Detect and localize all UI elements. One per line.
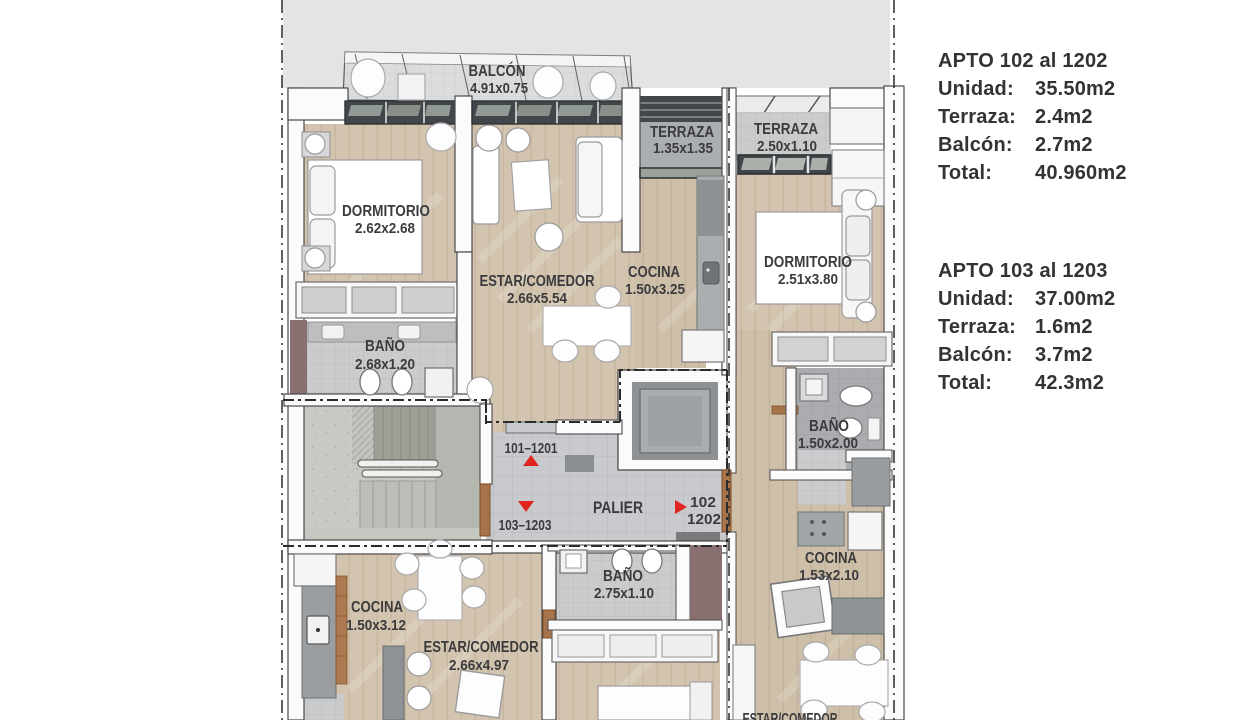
svg-text:1.6m2: 1.6m2 [1035,316,1093,338]
svg-text:COCINA: COCINA [805,550,857,567]
svg-text:Total:: Total: [938,372,992,394]
svg-text:TERRAZA: TERRAZA [650,124,714,141]
svg-text:103–1203: 103–1203 [499,517,552,534]
svg-text:ESTAR/COMEDOR: ESTAR/COMEDOR [480,273,595,290]
svg-text:2.66x5.54: 2.66x5.54 [507,291,567,307]
svg-text:2.62x2.68: 2.62x2.68 [355,221,415,237]
svg-text:Unidad:: Unidad: [938,288,1014,310]
svg-text:BAÑO: BAÑO [603,567,643,585]
svg-text:Terraza:: Terraza: [938,316,1016,338]
svg-text:BALCÓN: BALCÓN [469,62,526,80]
svg-text:DORMITORIO: DORMITORIO [764,254,852,271]
svg-text:TERRAZA: TERRAZA [754,121,818,138]
svg-text:101–1201: 101–1201 [505,440,558,457]
svg-text:Total:: Total: [938,162,992,184]
svg-text:40.960m2: 40.960m2 [1035,162,1127,184]
svg-text:2.66x4.97: 2.66x4.97 [449,658,509,674]
svg-text:PALIER: PALIER [593,498,643,517]
svg-text:Terraza:: Terraza: [938,106,1016,128]
svg-text:ESTAR/COMEDOR: ESTAR/COMEDOR [743,711,838,720]
svg-text:APTO 102 al 1202: APTO 102 al 1202 [938,50,1108,72]
svg-text:COCINA: COCINA [628,264,680,281]
svg-text:1.50x2.00: 1.50x2.00 [798,436,858,452]
svg-text:Balcón:: Balcón: [938,134,1013,156]
svg-text:APTO 103 al 1203: APTO 103 al 1203 [938,260,1108,282]
svg-text:102: 102 [690,494,716,511]
svg-text:1.50x3.12: 1.50x3.12 [346,618,406,634]
svg-text:Unidad:: Unidad: [938,78,1014,100]
svg-text:2.4m2: 2.4m2 [1035,106,1093,128]
svg-text:4.91x0.75: 4.91x0.75 [470,81,528,97]
svg-text:2.50x1.10: 2.50x1.10 [757,139,817,155]
svg-text:1.35x1.35: 1.35x1.35 [653,141,713,157]
svg-text:35.50m2: 35.50m2 [1035,78,1115,100]
svg-text:DORMITORIO: DORMITORIO [342,203,430,220]
svg-text:2.7m2: 2.7m2 [1035,134,1093,156]
svg-text:42.3m2: 42.3m2 [1035,372,1104,394]
svg-text:1.50x3.25: 1.50x3.25 [625,282,685,298]
svg-text:3.7m2: 3.7m2 [1035,344,1093,366]
svg-text:COCINA: COCINA [351,599,403,616]
svg-text:1.53x2.10: 1.53x2.10 [799,568,859,584]
svg-text:2.68x1.20: 2.68x1.20 [355,357,415,373]
svg-text:BAÑO: BAÑO [809,417,849,435]
svg-text:2.75x1.10: 2.75x1.10 [594,586,654,602]
svg-text:Balcón:: Balcón: [938,344,1013,366]
svg-text:2.51x3.80: 2.51x3.80 [778,272,838,288]
svg-text:1202: 1202 [687,511,721,528]
svg-text:BAÑO: BAÑO [365,337,405,355]
svg-text:37.00m2: 37.00m2 [1035,288,1115,310]
svg-text:ESTAR/COMEDOR: ESTAR/COMEDOR [424,639,539,656]
